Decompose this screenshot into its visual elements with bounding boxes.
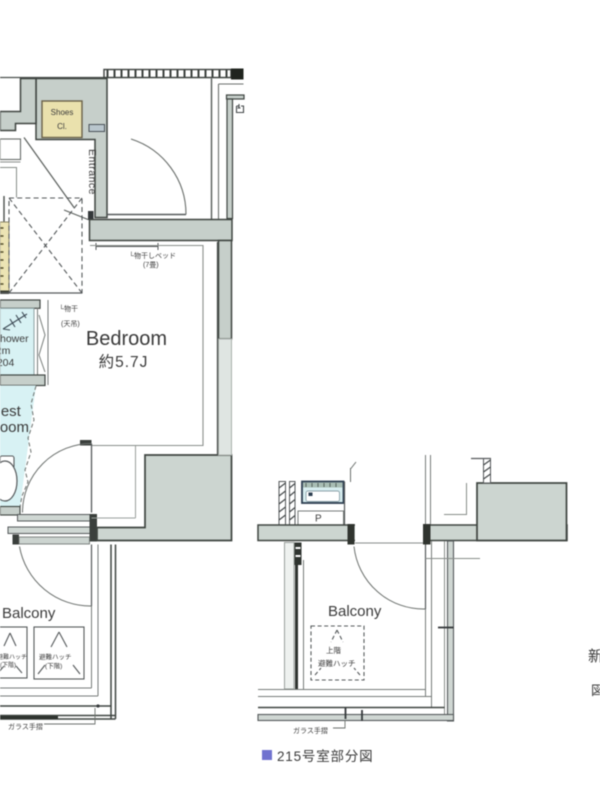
svg-text:ガラス手摺: ガラス手摺 — [8, 722, 43, 731]
svg-text:└物干しベッド: └物干しベッド — [129, 251, 176, 260]
svg-text:Shoes: Shoes — [51, 108, 74, 117]
svg-text:(下階): (下階) — [45, 661, 62, 670]
svg-text:215号室部分図: 215号室部分図 — [277, 748, 373, 764]
svg-text:新: 新 — [588, 648, 600, 665]
svg-text:Rest: Rest — [0, 403, 22, 420]
svg-text:Balcony: Balcony — [328, 603, 382, 620]
svg-text:上階: 上階 — [326, 645, 341, 655]
svg-text:避難ハッチ: 避難ハッチ — [0, 653, 27, 661]
svg-text:(下階): (下階) — [0, 661, 16, 669]
svg-text:ガラス手摺: ガラス手摺 — [293, 726, 328, 735]
svg-text:図: 図 — [591, 683, 600, 698]
svg-text:P: P — [315, 514, 322, 525]
svg-text:Bedroom: Bedroom — [86, 328, 167, 350]
svg-text:Shower: Shower — [0, 333, 29, 345]
svg-text:約5.7J: 約5.7J — [99, 353, 149, 371]
svg-text:1204: 1204 — [0, 357, 15, 369]
svg-text:(7畳): (7畳) — [143, 261, 159, 269]
svg-text:Cl.: Cl. — [57, 122, 67, 131]
svg-text:Balcony: Balcony — [2, 605, 56, 622]
svg-text:(天吊): (天吊) — [61, 320, 80, 328]
svg-text:避難ハッチ: 避難ハッチ — [318, 658, 356, 668]
svg-text:Rm: Rm — [0, 345, 11, 357]
svg-text:Entrance: Entrance — [86, 149, 98, 195]
svg-text:└物干: └物干 — [59, 304, 78, 313]
svg-text:避難ハッチ: 避難ハッチ — [39, 652, 72, 661]
svg-text:Room: Room — [0, 419, 29, 436]
